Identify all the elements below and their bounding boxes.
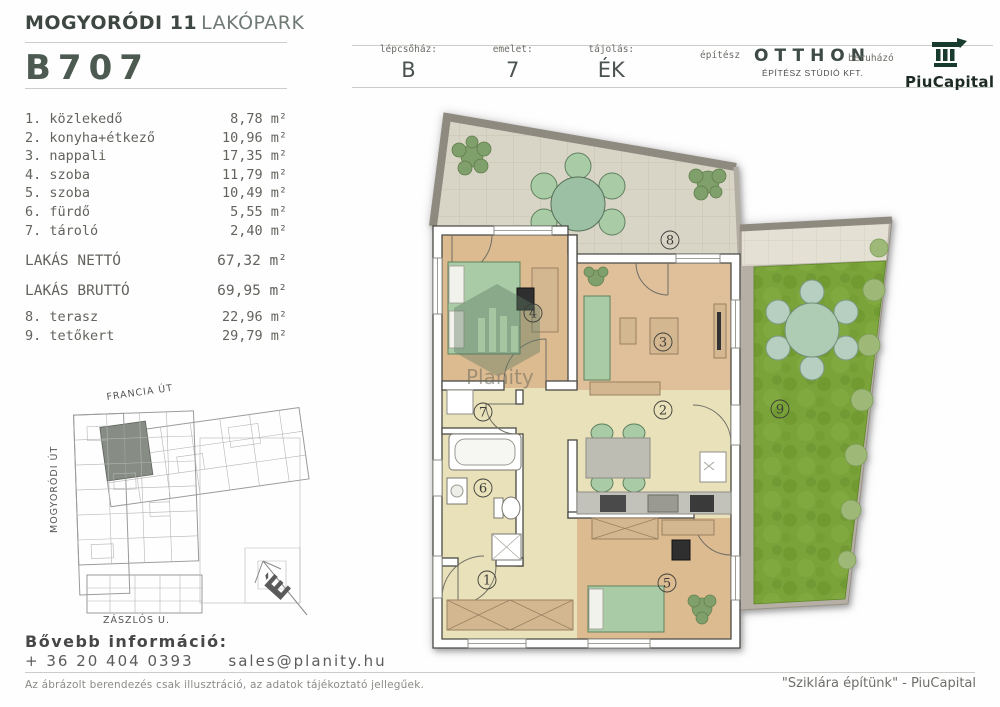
row-label: 4. szoba <box>25 166 90 185</box>
svg-text:5: 5 <box>663 577 671 592</box>
total-row: LAKÁS NETTÓ67,32 m² <box>25 246 287 276</box>
street-label-left: MOGYORÓDI ÚT <box>48 446 60 533</box>
room-row: 2. konyha+étkező10,96 m² <box>25 129 287 148</box>
row-area: 11,79 m² <box>222 166 287 185</box>
row-area: 5,55 m² <box>230 203 287 222</box>
svg-text:3: 3 <box>659 336 667 351</box>
total-row: LAKÁS BRUTTÓ69,95 m² <box>25 276 287 306</box>
room-row: 4. szoba11,79 m² <box>25 166 287 185</box>
orientation-label: tájolás: <box>588 44 634 55</box>
row-label: 9. tetőkert <box>25 327 114 346</box>
title-divider <box>25 42 287 43</box>
svg-text:1: 1 <box>483 574 491 589</box>
orientation-value: ÉK <box>598 58 625 82</box>
staircase-value: B <box>401 58 415 82</box>
room-row: 7. tároló2,40 m² <box>25 222 287 241</box>
row-area: 17,35 m² <box>222 147 287 166</box>
architect-block: építész OTTHON ÉPÍTÉSZ STÚDIÓ KFT. <box>700 46 871 78</box>
area-totals: LAKÁS NETTÓ67,32 m²LAKÁS BRUTTÓ69,95 m² <box>25 246 287 306</box>
svg-text:9: 9 <box>776 403 784 418</box>
project-name: MOGYORÓDI 11 <box>25 12 197 34</box>
architect-label: építész <box>700 50 740 61</box>
company-slogan: "Sziklára építünk" - PiuCapital <box>782 676 976 691</box>
outdoor-areas: 8. terasz22,96 m²9. tetőkert29,79 m² <box>25 308 287 345</box>
svg-text:8: 8 <box>666 234 674 249</box>
svg-text:Planity: Planity <box>466 365 534 389</box>
architect-subtitle: ÉPÍTÉSZ STÚDIÓ KFT. <box>754 68 871 78</box>
street-label-top: FRANCIA ÚT <box>106 383 174 403</box>
svg-text:2: 2 <box>659 404 667 419</box>
developer-logo: PiuCapital <box>905 38 991 91</box>
contact-phone: + 36 20 404 0393 <box>25 652 194 670</box>
row-area: 2,40 m² <box>230 222 287 241</box>
row-label: 2. konyha+étkező <box>25 129 155 148</box>
project-suffix: LAKÓPARK <box>201 12 304 34</box>
contact-line: + 36 20 404 0393 sales@planity.hu <box>25 652 387 670</box>
row-area: 29,79 m² <box>222 327 287 346</box>
contact-heading: Bővebb információ: <box>25 632 228 651</box>
page-title: MOGYORÓDI 11LAKÓPARK <box>25 12 304 34</box>
floor-label: emelet: <box>493 44 533 55</box>
row-label: 3. nappali <box>25 147 106 166</box>
hall-furniture <box>447 600 573 630</box>
roof-garden: 9 <box>740 220 892 610</box>
compass: É <box>255 561 307 615</box>
developer-name: PiuCapital <box>905 73 991 91</box>
row-label: 1. közlekedő <box>25 110 123 129</box>
svg-text:7: 7 <box>479 406 487 421</box>
row-label: 7. tároló <box>25 222 98 241</box>
room-list: 1. közlekedő8,78 m²2. konyha+étkező10,96… <box>25 110 287 240</box>
unit-id: B707 <box>25 48 150 88</box>
room-row: 6. fürdő5,55 m² <box>25 203 287 222</box>
svg-text:6: 6 <box>479 482 487 497</box>
disclaimer-text: Az ábrázolt berendezés csak illusztráció… <box>25 679 424 691</box>
unit-attributes: lépcsőház: B emelet: 7 tájolás: ÉK <box>352 44 662 82</box>
contact-email[interactable]: sales@planity.hu <box>228 652 386 670</box>
field-staircase: lépcsőház: B <box>380 44 437 82</box>
developer-label: beruházó <box>848 53 894 64</box>
row-label: LAKÁS BRUTTÓ <box>25 276 130 306</box>
compass-north-letter: É <box>258 568 298 607</box>
row-label: LAKÁS NETTÓ <box>25 246 121 276</box>
room-row: 5. szoba10,49 m² <box>25 184 287 203</box>
header-bottom-line <box>352 87 993 88</box>
outdoor-row: 9. tetőkert29,79 m² <box>25 327 287 346</box>
field-orientation: tájolás: ÉK <box>588 44 634 82</box>
row-area: 10,96 m² <box>222 129 287 148</box>
site-plan: FRANCIA ÚT MOGYORÓDI ÚT ZÁSZLÓS U. <box>15 383 325 642</box>
svg-text:4: 4 <box>529 307 537 322</box>
row-area: 69,95 m² <box>217 276 287 306</box>
unit-divider <box>25 88 287 89</box>
floor-value: 7 <box>506 58 519 82</box>
floor-plan: 8 <box>415 100 995 664</box>
piucapital-column-icon <box>927 38 969 68</box>
room-row: 3. nappali17,35 m² <box>25 147 287 166</box>
row-label: 5. szoba <box>25 184 90 203</box>
footer-divider <box>25 672 975 673</box>
row-label: 8. terasz <box>25 308 98 327</box>
floorplan-sheet: MOGYORÓDI 11LAKÓPARK B707 lépcsőház: B e… <box>0 0 1000 707</box>
outdoor-row: 8. terasz22,96 m² <box>25 308 287 327</box>
staircase-label: lépcsőház: <box>380 44 437 55</box>
room-row: 1. közlekedő8,78 m² <box>25 110 287 129</box>
row-label: 6. fürdő <box>25 203 90 222</box>
street-label-bottom: ZÁSZLÓS U. <box>103 614 170 626</box>
row-area: 67,32 m² <box>217 246 287 276</box>
storage-furniture <box>447 390 473 414</box>
row-area: 22,96 m² <box>222 308 287 327</box>
row-area: 8,78 m² <box>230 110 287 129</box>
developer-block: beruházó <box>848 46 894 65</box>
field-floor: emelet: 7 <box>493 44 533 82</box>
row-area: 10,49 m² <box>222 184 287 203</box>
